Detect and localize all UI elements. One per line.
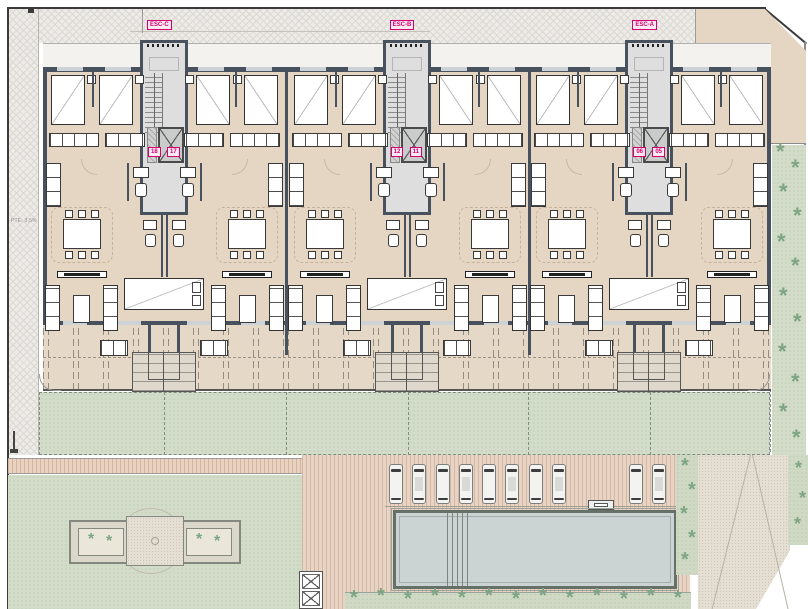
stair-label: ESC-A bbox=[632, 20, 657, 30]
palm-trees: ************************************* bbox=[0, 0, 808, 609]
unit-number-chip: 11 bbox=[410, 147, 422, 157]
unit-number-chip: 17 bbox=[167, 147, 180, 157]
unit-number-chip: 18 bbox=[148, 147, 161, 157]
unit-number-chip: 05 bbox=[652, 147, 665, 157]
unit-number-chip: 06 bbox=[633, 147, 646, 157]
stair-label: ESC-B bbox=[390, 20, 415, 30]
site-plan-canvas: PTE: 3,5% bbox=[0, 0, 808, 609]
stair-label: ESC-C bbox=[147, 20, 172, 30]
unit-number-chip: 12 bbox=[391, 147, 404, 157]
